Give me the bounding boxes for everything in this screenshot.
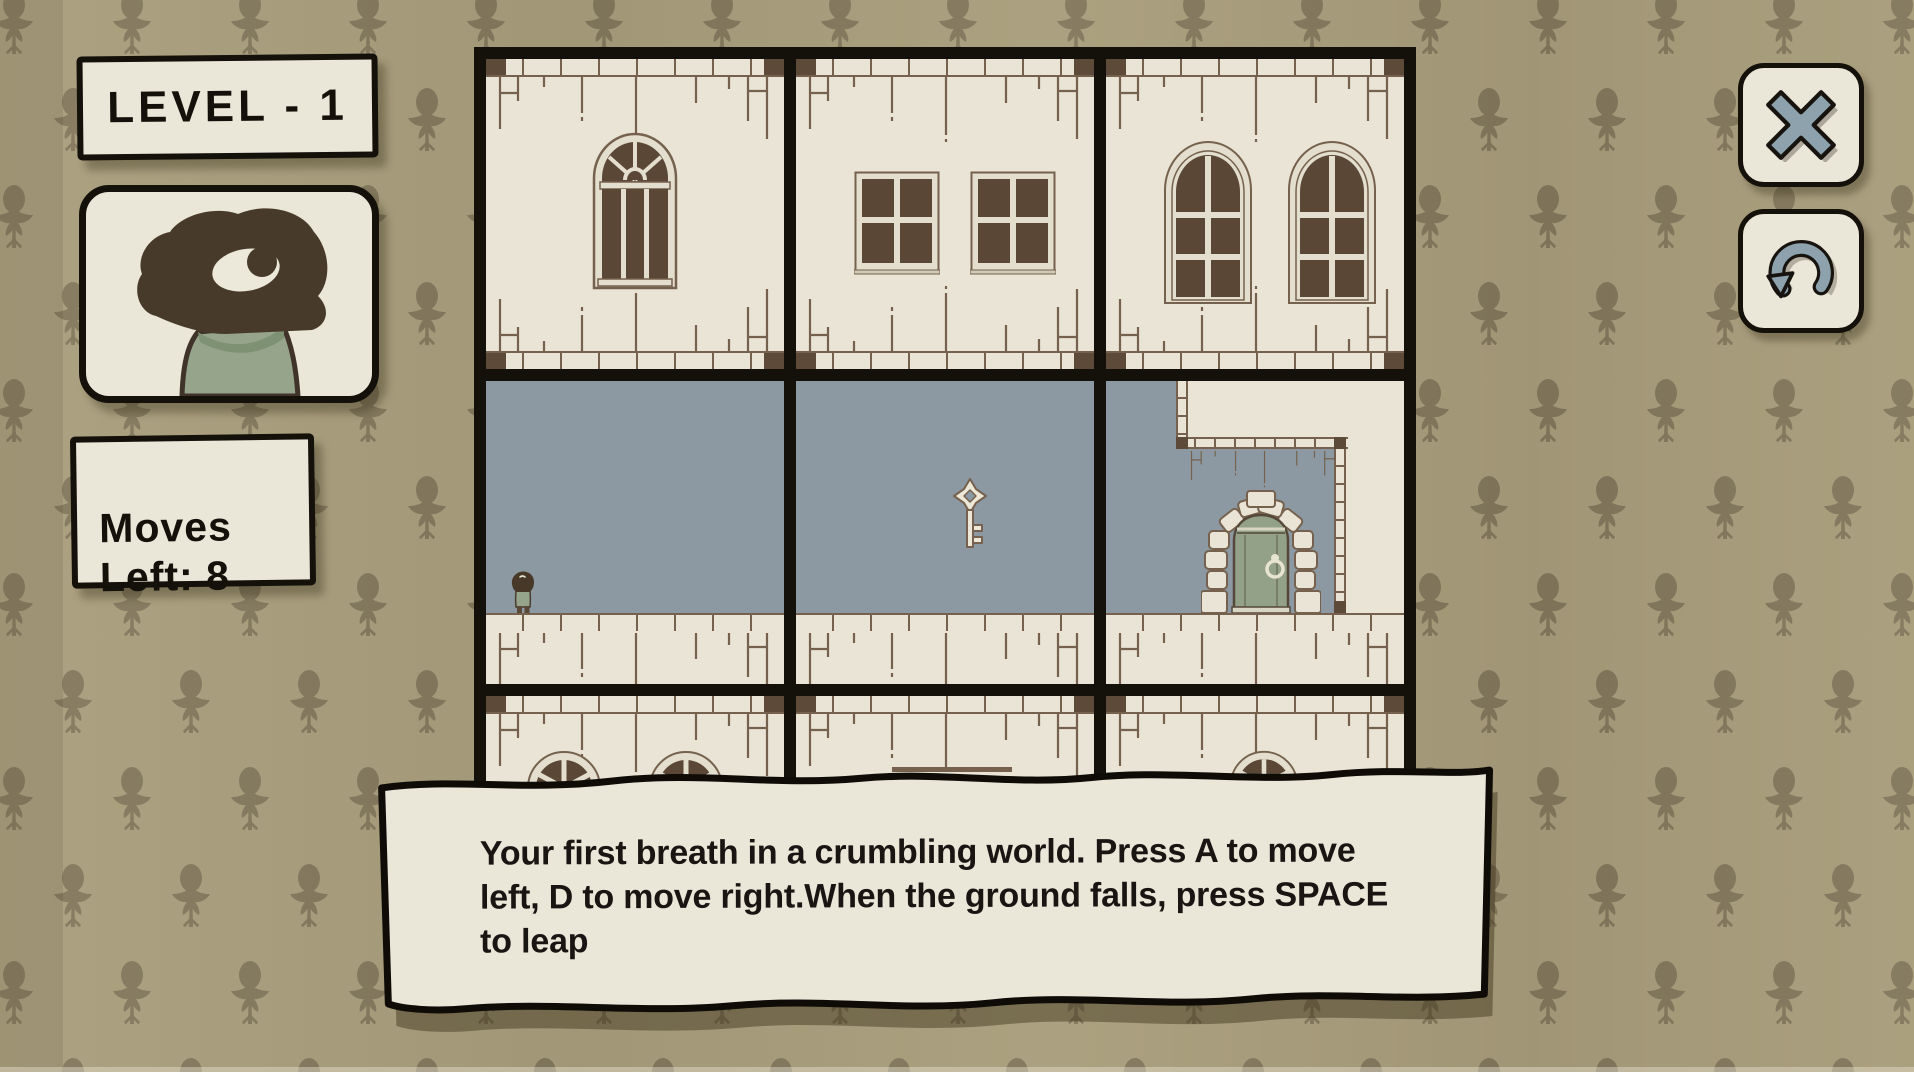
character-portrait xyxy=(79,185,379,403)
corner-brick xyxy=(1176,437,1188,449)
square-window xyxy=(854,171,940,275)
brick-border xyxy=(1176,381,1188,437)
game-board xyxy=(474,47,1416,788)
crack-drips xyxy=(1106,633,1404,684)
brick-trim xyxy=(486,59,784,77)
arched-fan-window xyxy=(590,126,680,291)
square-window xyxy=(970,171,1056,275)
room-0-2 xyxy=(1106,59,1404,369)
room-0-1 xyxy=(796,59,1094,369)
brick-trim xyxy=(1106,59,1404,77)
key-sprite xyxy=(950,477,990,549)
crack-drips xyxy=(486,633,784,684)
corner-brick xyxy=(1334,601,1346,613)
close-button[interactable] xyxy=(1738,63,1864,187)
arched-window xyxy=(1286,134,1378,306)
arched-window xyxy=(1162,134,1254,306)
crack-drips xyxy=(796,77,1094,149)
level-label: LEVEL - 1 xyxy=(107,81,348,134)
room-1-2 xyxy=(1106,381,1404,684)
floor-bricks xyxy=(1106,613,1404,633)
brick-trim xyxy=(796,696,1094,714)
wallpaper-left-shade xyxy=(0,0,63,1072)
moves-counter: Moves Left: 8 xyxy=(70,433,316,588)
brick-trim xyxy=(796,59,1094,77)
restart-arrow-icon xyxy=(1764,234,1838,308)
player-sprite xyxy=(510,570,536,614)
wall-block xyxy=(1176,381,1404,439)
exit-door-sprite xyxy=(1201,483,1321,613)
tutorial-text: Your first breath in a crumbling world. … xyxy=(480,828,1398,964)
brick-trim xyxy=(486,351,784,369)
brick-trim xyxy=(796,351,1094,369)
brick-trim xyxy=(486,696,784,714)
screen-bottom-edge xyxy=(0,1067,1914,1072)
x-icon xyxy=(1764,88,1838,162)
tutorial-note: Your first breath in a crumbling world. … xyxy=(371,754,1502,1048)
wall-block xyxy=(1346,439,1404,613)
brick-trim xyxy=(1106,351,1404,369)
crack-drips xyxy=(796,279,1094,351)
corner-brick xyxy=(1334,437,1346,449)
room-1-0 xyxy=(486,381,784,684)
brick-border xyxy=(1176,437,1348,449)
game-screen: LEVEL - 1 Moves Left: 8 xyxy=(0,0,1914,1072)
restart-button[interactable] xyxy=(1738,209,1864,333)
bird-portrait-icon xyxy=(86,192,372,396)
brick-trim xyxy=(1106,696,1404,714)
moves-label: Moves Left: 8 xyxy=(99,504,232,600)
floor-bricks xyxy=(486,613,784,633)
floor-bricks xyxy=(796,613,1094,633)
level-indicator: LEVEL - 1 xyxy=(76,53,378,160)
room-0-0 xyxy=(486,59,784,369)
crack-drips xyxy=(796,633,1094,684)
room-1-1 xyxy=(796,381,1094,684)
